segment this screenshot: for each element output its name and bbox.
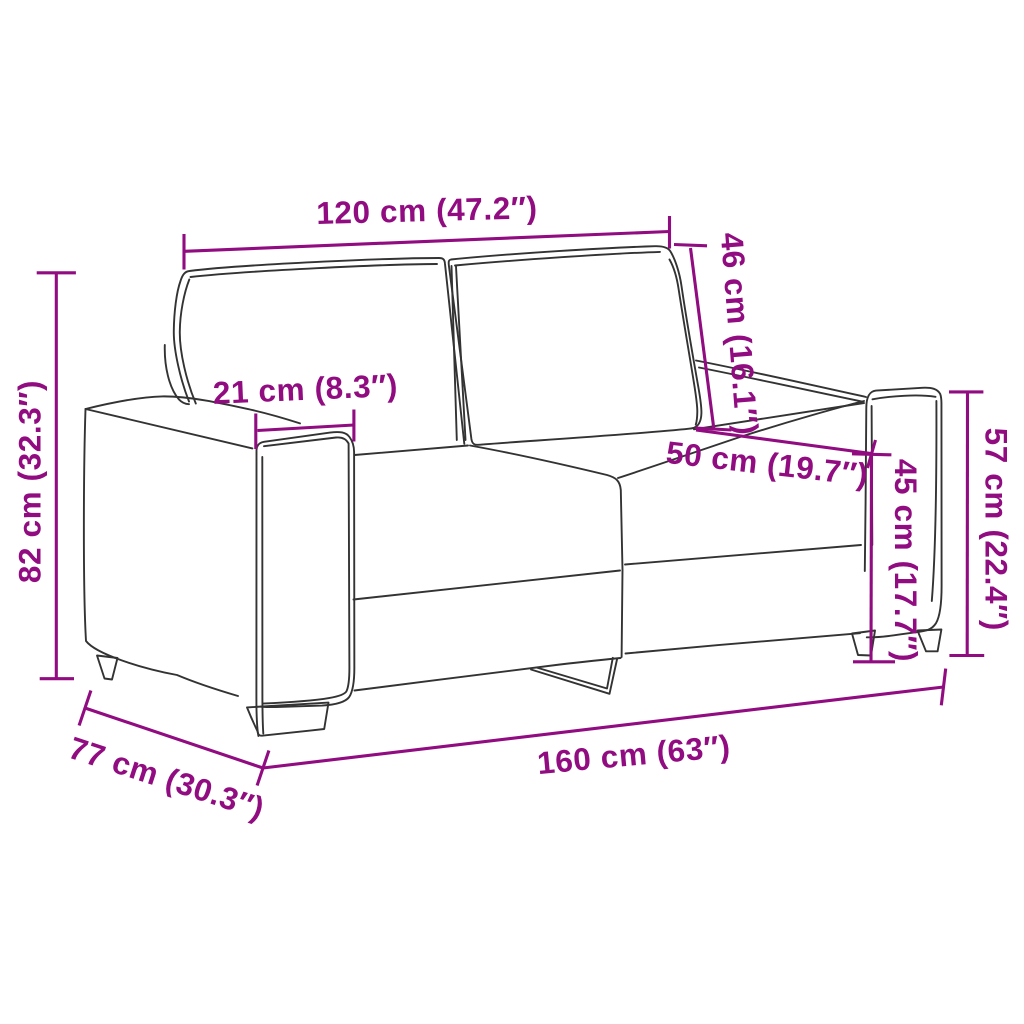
svg-text:82 cm (32.3″): 82 cm (32.3″) [12,380,48,583]
svg-text:120 cm (47.2″): 120 cm (47.2″) [316,189,538,231]
svg-text:57 cm (22.4″): 57 cm (22.4″) [979,428,1015,631]
svg-text:45 cm (17.7″): 45 cm (17.7″) [888,459,924,662]
